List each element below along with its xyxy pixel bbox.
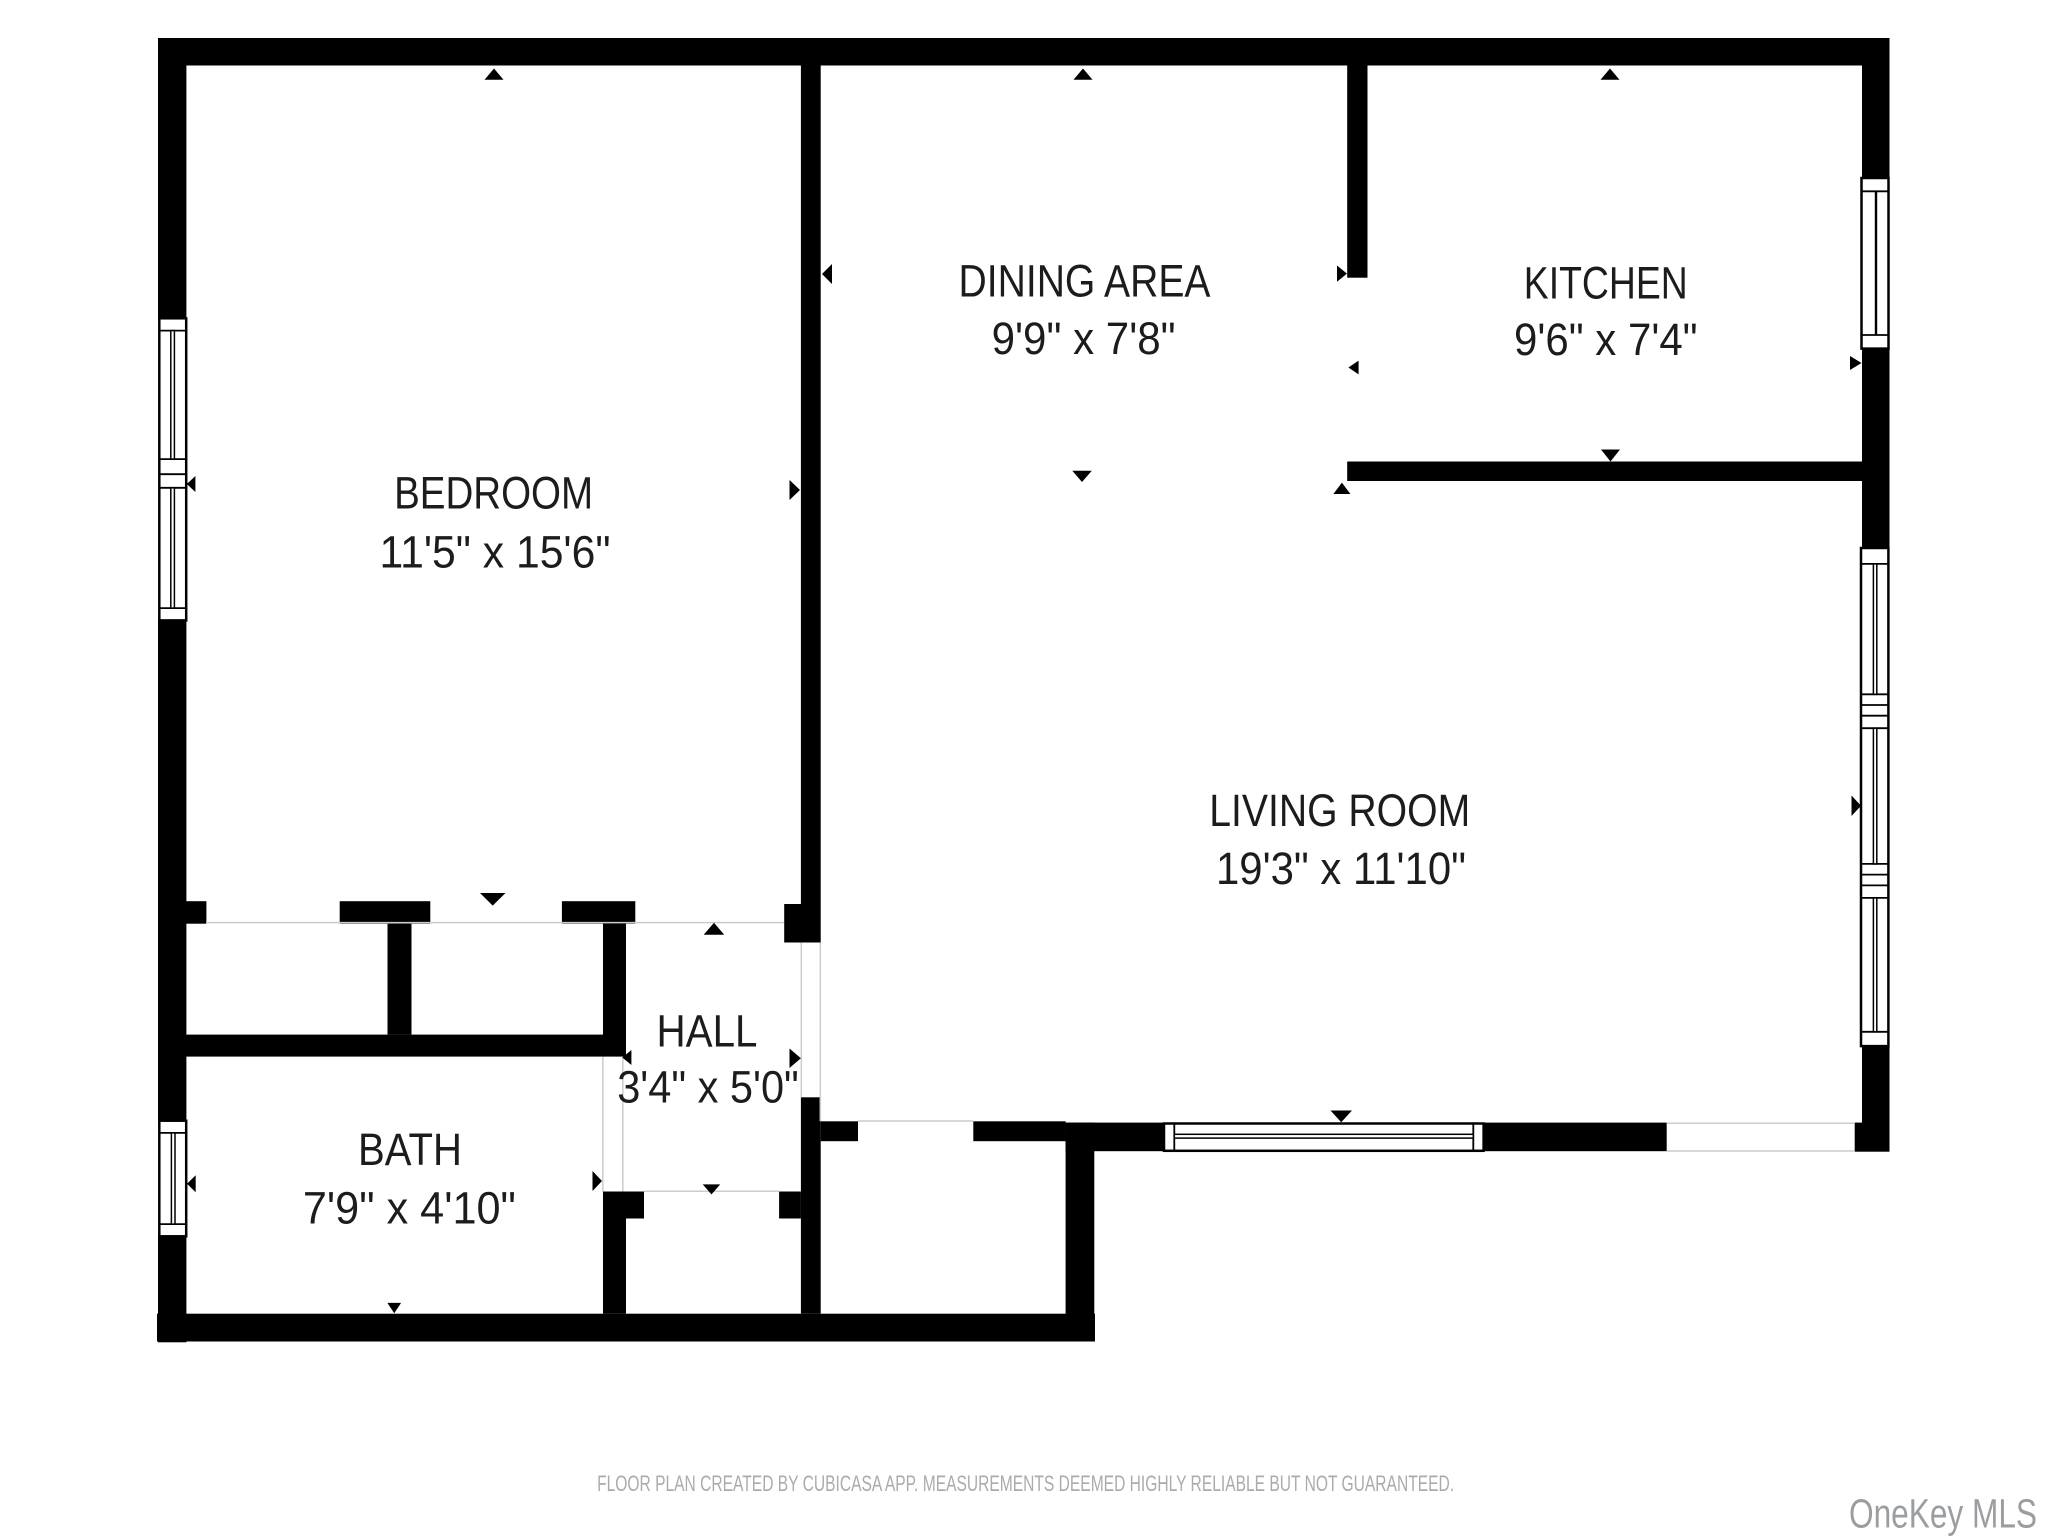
svg-text:9'9" x 7'8": 9'9" x 7'8"	[992, 313, 1176, 364]
svg-text:KITCHEN: KITCHEN	[1524, 257, 1688, 308]
svg-text:7'9" x 4'10": 7'9" x 4'10"	[303, 1182, 516, 1233]
svg-text:3'4" x 5'0": 3'4" x 5'0"	[617, 1061, 799, 1112]
svg-text:19'3" x 11'10": 19'3" x 11'10"	[1216, 843, 1466, 894]
svg-text:9'6" x 7'4": 9'6" x 7'4"	[1514, 314, 1698, 365]
svg-text:OneKey MLS: OneKey MLS	[1849, 1490, 2037, 1536]
svg-text:FLOOR PLAN CREATED BY CUBICASA: FLOOR PLAN CREATED BY CUBICASA APP. MEAS…	[597, 1471, 1454, 1496]
svg-text:BATH: BATH	[358, 1124, 462, 1175]
svg-text:DINING AREA: DINING AREA	[959, 255, 1211, 306]
svg-text:HALL: HALL	[657, 1006, 758, 1057]
svg-text:11'5" x 15'6": 11'5" x 15'6"	[380, 526, 611, 577]
svg-text:BEDROOM: BEDROOM	[394, 467, 593, 518]
svg-text:LIVING ROOM: LIVING ROOM	[1209, 785, 1470, 836]
